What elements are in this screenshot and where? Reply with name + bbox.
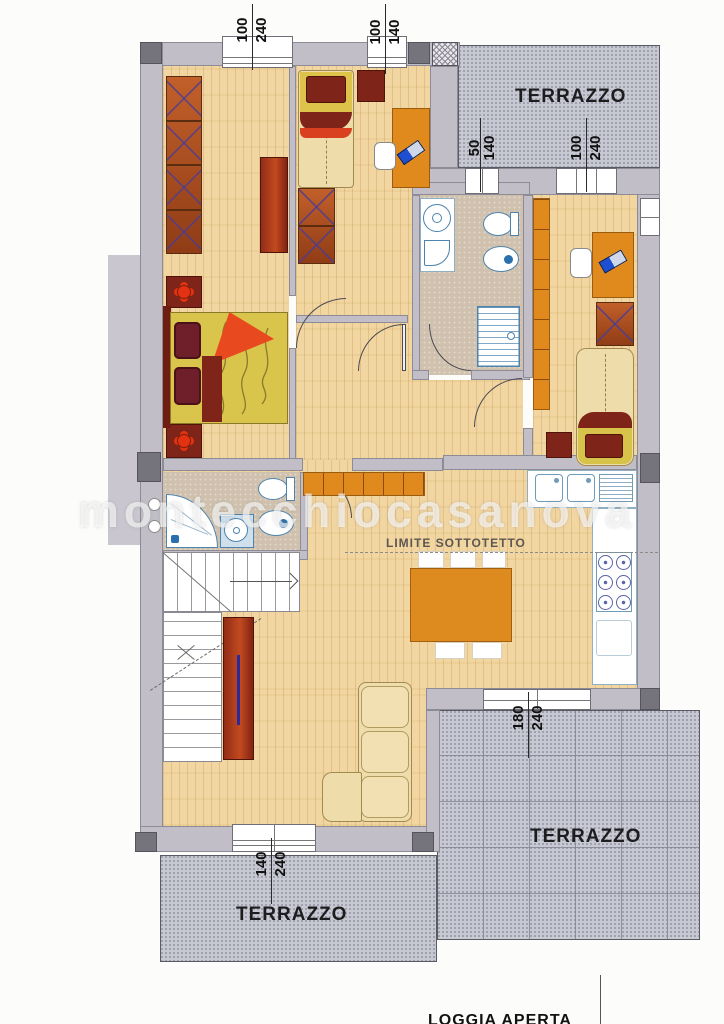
blanket-edge: [578, 412, 632, 428]
sofa-main: [358, 682, 412, 822]
wall-cameretta-east: [430, 66, 458, 168]
dining-chair: [435, 642, 465, 659]
sofa-chaise: [322, 772, 362, 822]
watermark: montecchiocasanova: [78, 484, 724, 538]
pillow: [306, 76, 346, 103]
flower-decoration: [177, 434, 191, 448]
staircase-lower-flight: [163, 612, 222, 762]
pillar-south-mid: [412, 832, 434, 852]
pillar-east-south: [640, 688, 660, 710]
pillar-north-mid: [408, 42, 430, 64]
washbasin-counter: [420, 198, 455, 272]
wall-master-cameretta-b: [289, 348, 296, 460]
pillar-east-mid: [640, 453, 660, 483]
dining-table: [410, 568, 512, 642]
loggia-boundary-line: [600, 975, 601, 1024]
dimension-terrace-door-large: 100 240: [563, 118, 609, 192]
wall-bathroom1-south-a: [412, 370, 429, 380]
stove-burner: [616, 555, 631, 570]
terrace-north-label: TERRAZZO: [515, 86, 626, 108]
wall-right: [637, 168, 660, 710]
cabinet-cameretta: [298, 188, 335, 264]
pillar-north-west: [140, 42, 162, 64]
duvet-fold-under: [202, 356, 222, 422]
dining-chair: [482, 551, 506, 568]
pillow: [174, 367, 201, 405]
dimension-loggia-window: 140 240: [248, 838, 294, 904]
wall-east-lower: [426, 710, 440, 852]
stove-burner: [598, 555, 613, 570]
wardrobe-cameretta: [357, 70, 385, 102]
shelf-column-bedroom2: [533, 198, 550, 410]
stove: [596, 552, 632, 612]
washbasin: [423, 204, 451, 232]
sideboard: [223, 617, 254, 760]
wall-living-north-b: [352, 458, 443, 471]
wall-bathroom1-west: [412, 195, 420, 375]
stove-burner: [616, 595, 631, 610]
wall-bedroom2-west-a: [523, 195, 533, 378]
pillow: [174, 322, 201, 359]
dining-chair: [450, 551, 476, 568]
dimension-cameretta-window: 100 140: [362, 4, 408, 74]
stove-burner: [598, 595, 613, 610]
dresser-master: [260, 157, 288, 253]
wardrobe-master: [166, 76, 202, 254]
dining-chair: [418, 551, 444, 568]
terrace-south-east-label: TERRAZZO: [530, 826, 641, 848]
flower-decoration: [177, 285, 191, 299]
single-bed-cameretta: [298, 70, 354, 188]
nightstand-south: [166, 424, 202, 458]
shower: [477, 306, 520, 367]
double-bed: [170, 312, 288, 424]
window-bedroom2-east: [640, 198, 660, 236]
dimension-terrace-south-door: 180 240: [505, 692, 551, 758]
loggia-aperta-label: LOGGIA APERTA: [428, 1012, 572, 1024]
desk-chair: [374, 142, 396, 170]
pillar-south-west: [135, 832, 157, 852]
blanket-accent: [300, 128, 352, 138]
toilet: [483, 212, 513, 236]
wall-living-north-a: [163, 458, 303, 471]
limite-sottotetto-label: LIMITE SOTTOTETTO: [386, 536, 526, 550]
terrace-south-east: [437, 710, 700, 940]
wall-left: [140, 42, 163, 852]
sofa-cushion: [361, 731, 409, 773]
dimension-master-window: 100 240: [229, 4, 275, 70]
bidet: [483, 246, 519, 272]
pillar-west-mid: [137, 452, 161, 482]
stove-burner: [598, 575, 613, 590]
limite-sottotetto-line: [345, 552, 658, 553]
desk-chair: [570, 248, 592, 278]
dimension-terrace-door-small: 50 140: [457, 118, 503, 192]
single-bed-bedroom2: [576, 348, 634, 466]
toilet-tank: [510, 212, 519, 236]
sofa-cushion: [361, 776, 409, 818]
pillar-hatched-north: [432, 42, 458, 66]
sofa-cushion: [361, 686, 409, 728]
dining-chair: [472, 642, 502, 659]
cabinet-bedroom2: [596, 302, 634, 346]
ottoman: [546, 432, 572, 458]
floor-plan: LIMITE SOTTOTETTO TERRAZZO TERRAZZO TERR…: [0, 0, 724, 1024]
stove-burner: [616, 575, 631, 590]
kitchen-base-cabinet: [596, 620, 632, 656]
wall-master-cameretta-a: [289, 66, 296, 296]
basin-cabinet: [424, 240, 450, 266]
terrace-south-west-label: TERRAZZO: [236, 904, 347, 926]
pillow: [585, 434, 623, 458]
nightstand-north: [166, 276, 202, 308]
staircase-upper-flight: [163, 552, 300, 612]
